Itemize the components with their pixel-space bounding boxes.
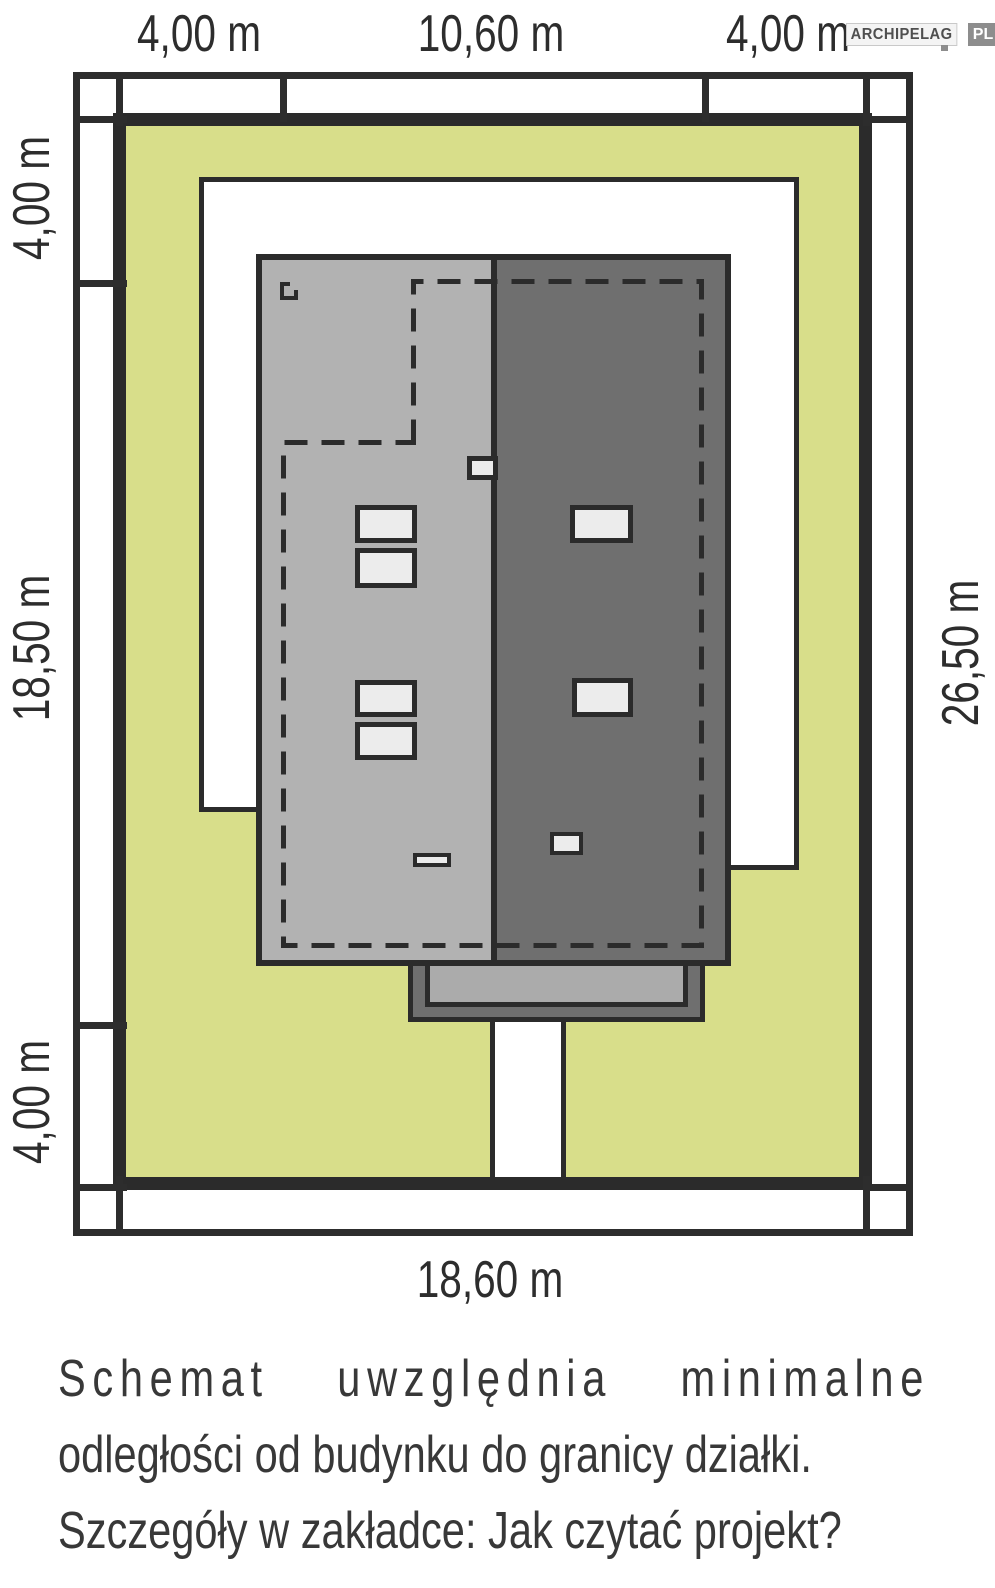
dimension-label-top-right: 4,00 m: [726, 4, 850, 64]
dimension-tick: [702, 72, 709, 122]
dimension-label-top-left: 4,00 m: [137, 4, 261, 64]
dimension-label-left-top: 4,00 m: [2, 136, 62, 260]
dimension-label-bottom: 18,60 m: [417, 1250, 564, 1310]
dimension-tick: [863, 116, 913, 123]
caption-line-2: odległości od budynku do granicy działki…: [58, 1424, 812, 1486]
logo-notch: [941, 45, 948, 51]
dimension-label-left-middle: 18,50 m: [2, 575, 62, 722]
chimney-icon: [282, 284, 296, 298]
dimension-tick: [116, 1176, 123, 1236]
logo-tld-badge: PL: [968, 23, 995, 46]
dimension-label-top-middle: 10,60 m: [418, 4, 565, 64]
dimension-tick: [73, 1022, 127, 1029]
dimension-tick: [73, 116, 127, 123]
logo-brand-text: ARCHIPELAG: [846, 23, 957, 46]
dimension-label-right: 26,50 m: [931, 580, 991, 727]
dimension-line-top: [73, 72, 913, 79]
caption-line-3: Szczegóły w zakładce: Jak czytać projekt…: [58, 1500, 842, 1562]
dimension-tick: [73, 280, 127, 287]
archipelag-logo: ARCHIPELAG PL: [846, 23, 995, 46]
dimension-tick: [280, 72, 287, 122]
dimension-tick: [863, 1184, 913, 1191]
dimension-line-bottom: [73, 1229, 913, 1236]
dimension-line-right: [906, 72, 913, 1236]
dimension-line-left: [73, 72, 80, 1236]
caption-line-1: Schemat uwzględnia minimalne: [58, 1348, 930, 1410]
dimension-label-left-bottom: 4,00 m: [2, 1040, 62, 1164]
dimension-tick: [863, 1176, 870, 1236]
